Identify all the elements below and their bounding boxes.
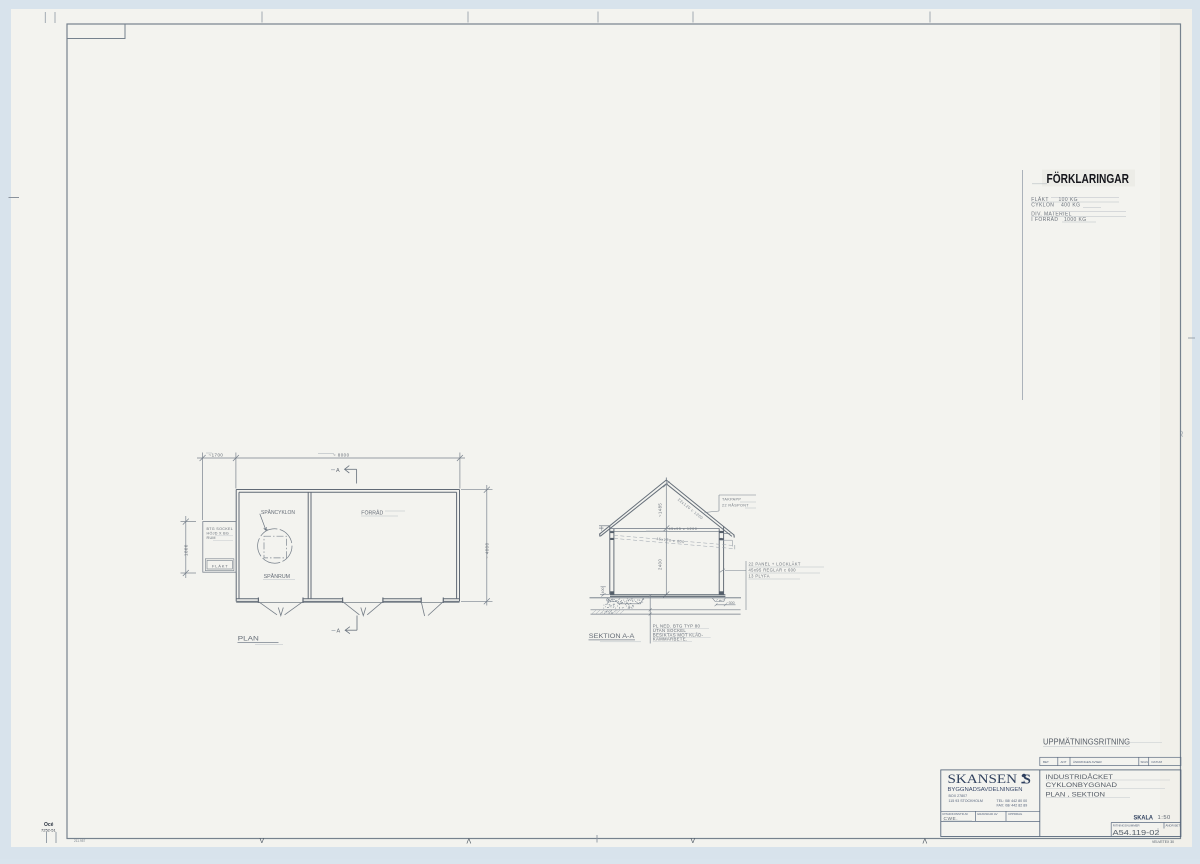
svg-text:ÄNDRINGEN AVSER: ÄNDRINGEN AVSER (1073, 760, 1102, 764)
svg-text:211.957: 211.957 (74, 839, 86, 843)
svg-text:22 RÅSPONT: 22 RÅSPONT (722, 502, 749, 507)
svg-text:FAX: 08/ 442 82 89: FAX: 08/ 442 82 89 (997, 803, 1028, 807)
svg-text:INDUSTRIDÅCKET: INDUSTRIDÅCKET (1046, 772, 1114, 781)
svg-text:Λ: Λ (467, 839, 472, 846)
svg-text:SPÅNCYKLON: SPÅNCYKLON (261, 509, 295, 516)
svg-text:UPPMÄTNINGSRITNING: UPPMÄTNINGSRITNING (1043, 738, 1130, 747)
svg-text:45x95 REGLAR c 600: 45x95 REGLAR c 600 (749, 568, 797, 573)
svg-text:SEKTION A-A: SEKTION A-A (589, 634, 635, 640)
svg-text:TAKPAPP: TAKPAPP (722, 497, 741, 501)
svg-text:A: A (336, 468, 340, 474)
svg-text:FÖRRÅD: FÖRRÅD (361, 509, 383, 516)
svg-text:FÖRKLARINGAR: FÖRKLARINGAR (1047, 171, 1130, 186)
svg-text:UPPDRAG: UPPDRAG (1008, 812, 1023, 816)
svg-text:1800: 1800 (184, 544, 189, 556)
svg-text:A: A (337, 629, 341, 635)
svg-text:115 93 STOCKHOLM: 115 93 STOCKHOLM (949, 799, 983, 803)
svg-text:BYGGNADSAVDELNINGEN: BYGGNADSAVDELNINGEN (948, 787, 1023, 793)
svg-text:BOX 27807: BOX 27807 (949, 794, 968, 798)
svg-text:SKALA: SKALA (1134, 814, 1154, 821)
svg-text:22 PANEL + LOCKLÄKT: 22 PANEL + LOCKLÄKT (749, 562, 801, 567)
svg-text:ÄNDR BET: ÄNDR BET (1166, 824, 1181, 828)
svg-text:~1485: ~1485 (658, 503, 663, 517)
svg-text:13 PLYFA: 13 PLYFA (749, 574, 770, 579)
svg-text:Λ: Λ (923, 839, 928, 846)
svg-text:I FÖRRÅD: I FÖRRÅD (1031, 216, 1058, 223)
svg-text:ANT: ANT (1061, 760, 1067, 764)
svg-text:SIGN: SIGN (1141, 760, 1148, 764)
svg-text:1:50: 1:50 (1158, 815, 1171, 821)
svg-text:2400: 2400 (658, 559, 663, 570)
svg-text:~300: ~300 (727, 601, 735, 605)
svg-text:SPÅNRUM: SPÅNRUM (264, 573, 291, 580)
svg-text:KAMMARBETE.: KAMMARBETE. (653, 636, 688, 641)
svg-text:DATUM: DATUM (1152, 760, 1163, 764)
svg-text:RUM: RUM (207, 536, 216, 540)
svg-text:CYKLON: CYKLON (1031, 202, 1054, 208)
svg-text:GRANSKAD AV: GRANSKAD AV (977, 812, 998, 816)
svg-text:HÖJD X BG: HÖJD X BG (207, 532, 230, 536)
svg-text:~ 4000: ~ 4000 (485, 542, 490, 559)
svg-text:~ 8000: ~ 8000 (333, 452, 350, 457)
svg-text:V: V (691, 838, 696, 845)
svg-text:400: 400 (601, 588, 605, 594)
svg-text:A54.119-02: A54.119-02 (1113, 828, 1160, 837)
svg-text:45x95 c 1200: 45x95 c 1200 (669, 527, 698, 531)
svg-text:400 KG: 400 KG (1061, 202, 1080, 208)
svg-text:FLÄKT: FLÄKT (212, 563, 228, 568)
svg-text:BET: BET (1043, 760, 1049, 764)
svg-text:RITAD/KONSTR AV: RITAD/KONSTR AV (943, 812, 969, 816)
svg-text:SKANSEN: SKANSEN (948, 772, 1018, 786)
svg-text:CWE.: CWE. (944, 816, 959, 822)
svg-text:7252-51: 7252-51 (41, 828, 56, 833)
svg-text:PLAN: PLAN (238, 636, 259, 643)
svg-text:VELVETEX 30: VELVETEX 30 (1152, 840, 1174, 844)
svg-text:BTG SOCKEL: BTG SOCKEL (207, 527, 234, 531)
svg-text:V: V (260, 838, 265, 845)
